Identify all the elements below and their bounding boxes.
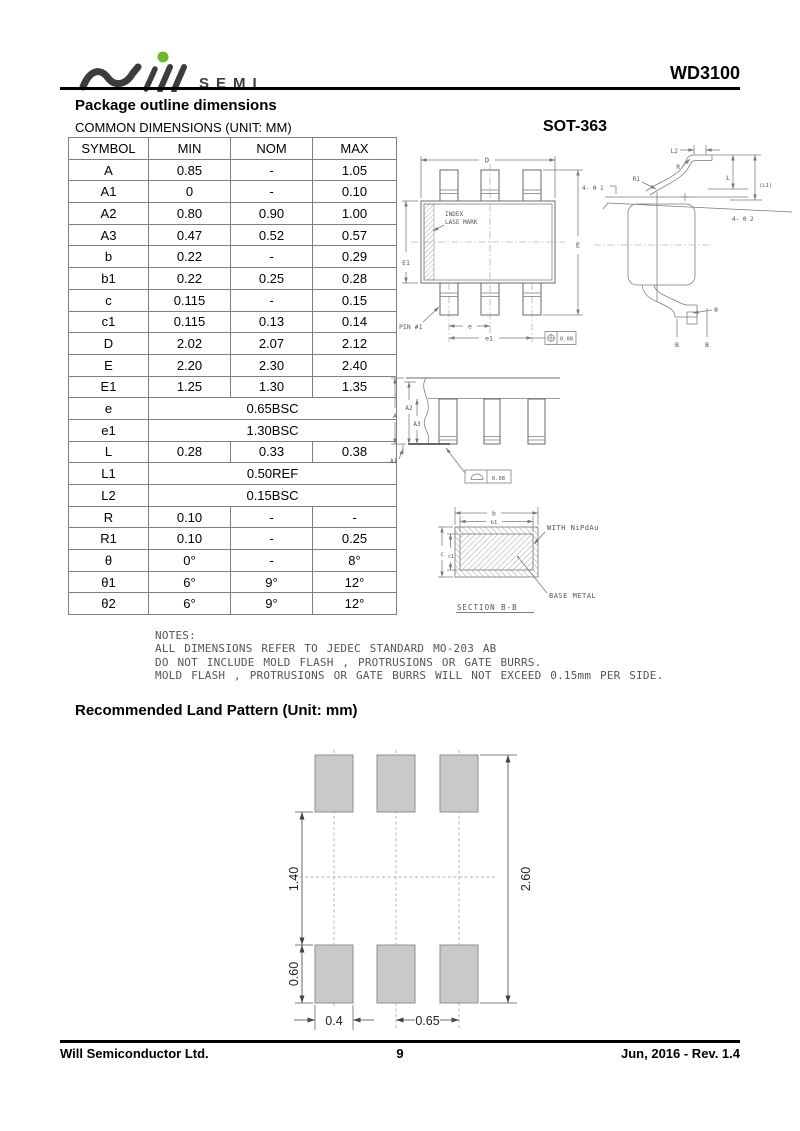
value-cell: 0.28	[149, 441, 231, 463]
symbol-cell: L	[69, 441, 149, 463]
index-label-line2: LASE MARK	[445, 219, 478, 226]
dimensions-table: SYMBOL MIN NOM MAX A0.85-1.05A10-0.10A20…	[68, 137, 397, 615]
dim-label-r: R	[676, 164, 680, 171]
value-cell: 2.20	[149, 354, 231, 376]
dim-label-b: b	[492, 510, 496, 518]
header-rule	[60, 87, 740, 90]
table-row: c0.115-0.15	[69, 289, 397, 311]
value-cell: 0.15	[313, 289, 397, 311]
value-cell: 0.22	[149, 246, 231, 268]
column-header-min: MIN	[149, 138, 231, 160]
datasheet-page: SEMI WD3100 Package outline dimensions C…	[0, 0, 800, 1131]
land-pad	[377, 945, 415, 1003]
table-row: A20.800.901.00	[69, 203, 397, 225]
dim-label-b1: b1	[491, 520, 498, 526]
value-cell: 0.10	[313, 181, 397, 203]
note-line: ALL DIMENSIONS REFER TO JEDEC STANDARD M…	[155, 642, 663, 655]
value-cell: 1.30	[231, 376, 313, 398]
table-row: R0.10--	[69, 506, 397, 528]
section-title-package-outline: Package outline dimensions	[75, 97, 277, 114]
symbol-cell: A1	[69, 181, 149, 203]
column-header-nom: NOM	[231, 138, 313, 160]
section-mark-b-right: B	[705, 341, 709, 349]
land-pads	[315, 755, 478, 1003]
side-view-drawing: 4- θ 1 4- θ 2 L2 R R1 L (L1) θ	[580, 142, 800, 357]
table-row: b10.220.250.28	[69, 268, 397, 290]
value-cell: 0.57	[313, 224, 397, 246]
land-pattern-drawing: 1.40 0.60 2.60 0.4 0.65	[268, 742, 538, 1040]
symbol-cell: A3	[69, 224, 149, 246]
value-cell: -	[231, 550, 313, 572]
value-cell: 0.38	[313, 441, 397, 463]
value-cell: 1.25	[149, 376, 231, 398]
note-line: MOLD FLASH , PROTRUSIONS OR GATE BURRS W…	[155, 669, 663, 682]
angle-label-theta1: 4- θ 1	[582, 185, 604, 192]
table-row: θ16°9°12°	[69, 571, 397, 593]
table-row: b0.22-0.29	[69, 246, 397, 268]
company-logo-icon: SEMI	[68, 44, 328, 92]
pin1-label: PIN #1	[399, 323, 423, 331]
value-cell: 6°	[149, 571, 231, 593]
symbol-cell: e1	[69, 419, 149, 441]
footer-rule	[60, 1040, 740, 1043]
table-row: A30.470.520.57	[69, 224, 397, 246]
value-cell: 0.22	[149, 268, 231, 290]
value-cell: 0.85	[149, 159, 231, 181]
dim-label-c1: c1	[448, 554, 454, 560]
value-cell: 0.115	[149, 311, 231, 333]
dim-label-theta: θ	[714, 306, 718, 314]
table-row: A0.85-1.05	[69, 159, 397, 181]
logo-green-dot-icon	[158, 52, 169, 63]
section-mark-b-left: B	[675, 341, 679, 349]
table-row: θ0°-8°	[69, 550, 397, 572]
table-row: L10.50REF	[69, 463, 397, 485]
symbol-cell: b1	[69, 268, 149, 290]
land-pad	[315, 945, 353, 1003]
dim-label-r1: R1	[633, 176, 641, 183]
footer-revision: Jun, 2016 - Rev. 1.4	[621, 1046, 740, 1061]
land-pad	[440, 755, 478, 812]
table-row: L20.15BSC	[69, 485, 397, 507]
note-line: DO NOT INCLUDE MOLD FLASH , PROTRUSIONS …	[155, 656, 663, 669]
tolerance-value: 0.08	[560, 337, 573, 343]
index-label-line1: INDEX	[445, 211, 463, 218]
dim-label-pitch-e: e	[468, 323, 472, 331]
front-view-drawing: A A2 A3 A1 0.08	[388, 370, 573, 492]
dim-label-pitch: 0.65	[415, 1014, 439, 1028]
value-cell: 12°	[313, 571, 397, 593]
value-cell: 0.50REF	[149, 463, 397, 485]
value-cell: 0.10	[149, 528, 231, 550]
position-tolerance-frame: 0.08	[545, 332, 576, 345]
symbol-cell: R1	[69, 528, 149, 550]
flatness-symbol-icon	[471, 474, 483, 480]
angle-label-theta2: 4- θ 2	[732, 216, 754, 223]
value-cell: -	[231, 246, 313, 268]
dim-label-e1-body: E1	[402, 259, 410, 267]
notes-block: NOTES: ALL DIMENSIONS REFER TO JEDEC STA…	[155, 629, 663, 683]
value-cell: 0.115	[149, 289, 231, 311]
value-cell: 1.00	[313, 203, 397, 225]
table-row: θ26°9°12°	[69, 593, 397, 615]
table-row: A10-0.10	[69, 181, 397, 203]
section-bb-caption: SECTION B-B	[457, 603, 518, 612]
value-cell: -	[231, 159, 313, 181]
dim-label-pitch-e1: e1	[485, 335, 493, 343]
notes-title: NOTES:	[155, 629, 663, 642]
table-header-row: SYMBOL MIN NOM MAX	[69, 138, 397, 160]
symbol-cell: b	[69, 246, 149, 268]
value-cell: 2.40	[313, 354, 397, 376]
value-cell: 1.05	[313, 159, 397, 181]
value-cell: 0.25	[313, 528, 397, 550]
value-cell: 9°	[231, 593, 313, 615]
table-row: e11.30BSC	[69, 419, 397, 441]
value-cell: 0.13	[231, 311, 313, 333]
value-cell: 2.12	[313, 333, 397, 355]
plating-note: WITH NiPdAu	[547, 524, 599, 532]
value-cell: 0.15BSC	[149, 485, 397, 507]
dim-label-l: L	[726, 174, 730, 182]
value-cell: 8°	[313, 550, 397, 572]
table-row: L0.280.330.38	[69, 441, 397, 463]
symbol-cell: E	[69, 354, 149, 376]
value-cell: 0.47	[149, 224, 231, 246]
value-cell: 2.30	[231, 354, 313, 376]
value-cell: 6°	[149, 593, 231, 615]
symbol-cell: θ1	[69, 571, 149, 593]
symbol-cell: L1	[69, 463, 149, 485]
symbol-cell: A2	[69, 203, 149, 225]
column-header-max: MAX	[313, 138, 397, 160]
symbol-cell: c	[69, 289, 149, 311]
dim-label-a1: A1	[390, 458, 398, 465]
table-row: E2.202.302.40	[69, 354, 397, 376]
dim-label-c: c	[440, 551, 444, 558]
column-header-symbol: SYMBOL	[69, 138, 149, 160]
part-number: WD3100	[670, 63, 740, 84]
value-cell: 12°	[313, 593, 397, 615]
dim-label-pad-height: 0.60	[287, 962, 301, 986]
symbol-cell: e	[69, 398, 149, 420]
land-pad	[440, 945, 478, 1003]
table-row: R10.10-0.25	[69, 528, 397, 550]
dim-label-l1: (L1)	[759, 183, 772, 189]
symbol-cell: θ	[69, 550, 149, 572]
symbol-cell: L2	[69, 485, 149, 507]
value-cell: 0.80	[149, 203, 231, 225]
dim-label-row-gap: 1.40	[287, 867, 301, 891]
flatness-value: 0.08	[492, 476, 505, 482]
value-cell: 1.30BSC	[149, 419, 397, 441]
dim-label-l2: L2	[671, 148, 679, 155]
value-cell: -	[313, 506, 397, 528]
value-cell: 0.25	[231, 268, 313, 290]
value-cell: -	[231, 181, 313, 203]
value-cell: 0.65BSC	[149, 398, 397, 420]
section-title-land-pattern: Recommended Land Pattern (Unit: mm)	[75, 702, 358, 719]
base-metal-note: BASE METAL	[549, 592, 596, 600]
dimensions-table-body: A0.85-1.05A10-0.10A20.800.901.00A30.470.…	[69, 159, 397, 614]
value-cell: 0.14	[313, 311, 397, 333]
symbol-cell: E1	[69, 376, 149, 398]
value-cell: 1.35	[313, 376, 397, 398]
value-cell: 0.28	[313, 268, 397, 290]
top-view-drawing: D E1 E e e1	[393, 146, 611, 354]
value-cell: 0.33	[231, 441, 313, 463]
land-pad	[377, 755, 415, 812]
value-cell: 0	[149, 181, 231, 203]
base-metal-hatch	[460, 534, 533, 570]
dim-label-overall-height: 2.60	[519, 867, 533, 891]
value-cell: 9°	[231, 571, 313, 593]
package-name: SOT-363	[495, 118, 655, 136]
value-cell: -	[231, 506, 313, 528]
dim-label-d: D	[485, 157, 489, 165]
dim-label-a2: A2	[405, 405, 413, 412]
table-subtitle: COMMON DIMENSIONS (UNIT: MM)	[75, 120, 292, 135]
flatness-tolerance-frame: 0.08	[465, 470, 511, 483]
value-cell: 0.90	[231, 203, 313, 225]
value-cell: 2.07	[231, 333, 313, 355]
value-cell: 0°	[149, 550, 231, 572]
table-row: e0.65BSC	[69, 398, 397, 420]
value-cell: 2.02	[149, 333, 231, 355]
value-cell: -	[231, 528, 313, 550]
symbol-cell: A	[69, 159, 149, 181]
symbol-cell: θ2	[69, 593, 149, 615]
value-cell: 0.29	[313, 246, 397, 268]
dim-label-a: A	[393, 412, 397, 420]
value-cell: 0.10	[149, 506, 231, 528]
value-cell: -	[231, 289, 313, 311]
table-row: E11.251.301.35	[69, 376, 397, 398]
table-row: D2.022.072.12	[69, 333, 397, 355]
symbol-cell: D	[69, 333, 149, 355]
dim-label-pad-width: 0.4	[325, 1014, 342, 1028]
value-cell: 0.52	[231, 224, 313, 246]
land-pad	[315, 755, 353, 812]
table-row: c10.1150.130.14	[69, 311, 397, 333]
dim-label-a3: A3	[413, 421, 421, 428]
symbol-cell: R	[69, 506, 149, 528]
symbol-cell: c1	[69, 311, 149, 333]
section-bb-drawing: b b1 c c1 WITH NiPdAu BASE METAL SECTION…	[430, 500, 635, 618]
